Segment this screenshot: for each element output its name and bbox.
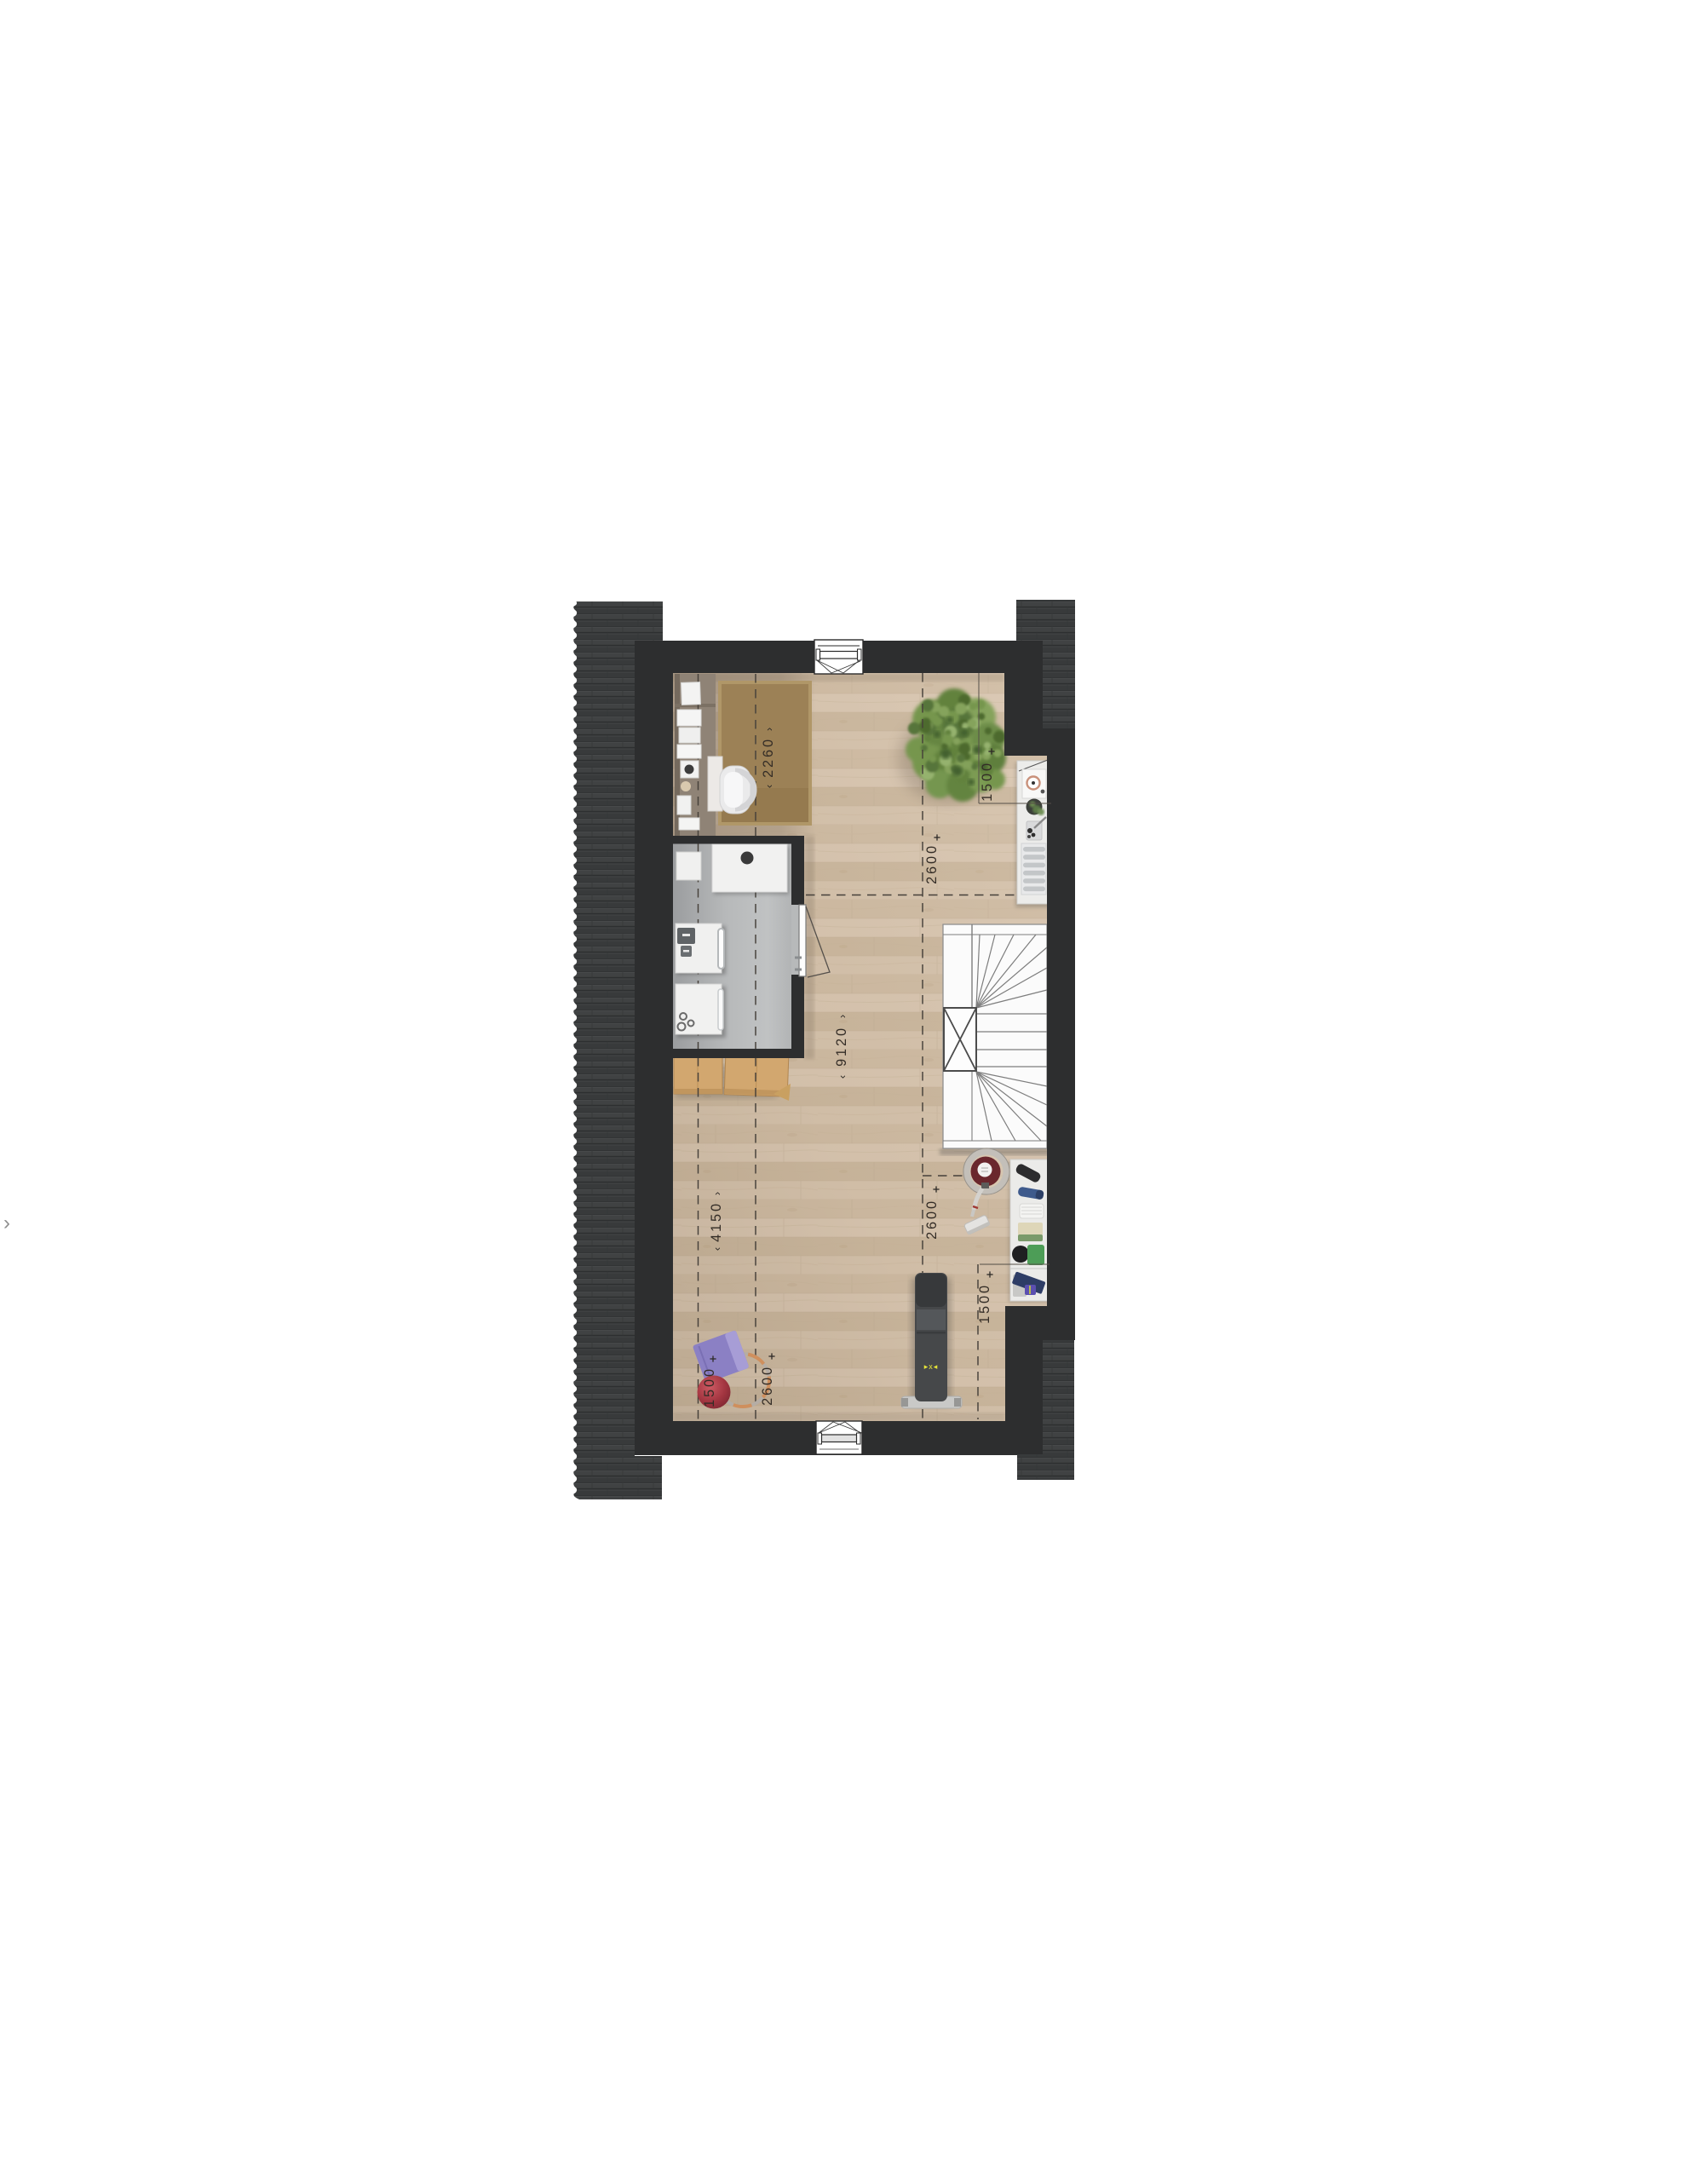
svg-text:›: › — [3, 1211, 10, 1234]
svg-text:‹: ‹ — [710, 1247, 723, 1251]
svg-text:▸x◂: ▸x◂ — [924, 1362, 939, 1371]
svg-text:1500: 1500 — [977, 1283, 992, 1324]
svg-text:›: › — [710, 1192, 723, 1195]
svg-text:‹: ‹ — [836, 1075, 848, 1079]
svg-text:1500: 1500 — [980, 761, 995, 802]
svg-text:4150: 4150 — [709, 1201, 724, 1242]
svg-text:2600: 2600 — [924, 843, 940, 884]
svg-text:1500: 1500 — [702, 1367, 717, 1407]
svg-text:2260: 2260 — [761, 737, 776, 778]
svg-text:2600: 2600 — [924, 1199, 940, 1240]
svg-text:‹: ‹ — [762, 785, 775, 788]
svg-text:›: › — [836, 1015, 848, 1018]
svg-text:9120: 9120 — [834, 1026, 849, 1067]
svg-text:2600: 2600 — [760, 1365, 775, 1406]
svg-text:›: › — [762, 728, 775, 731]
